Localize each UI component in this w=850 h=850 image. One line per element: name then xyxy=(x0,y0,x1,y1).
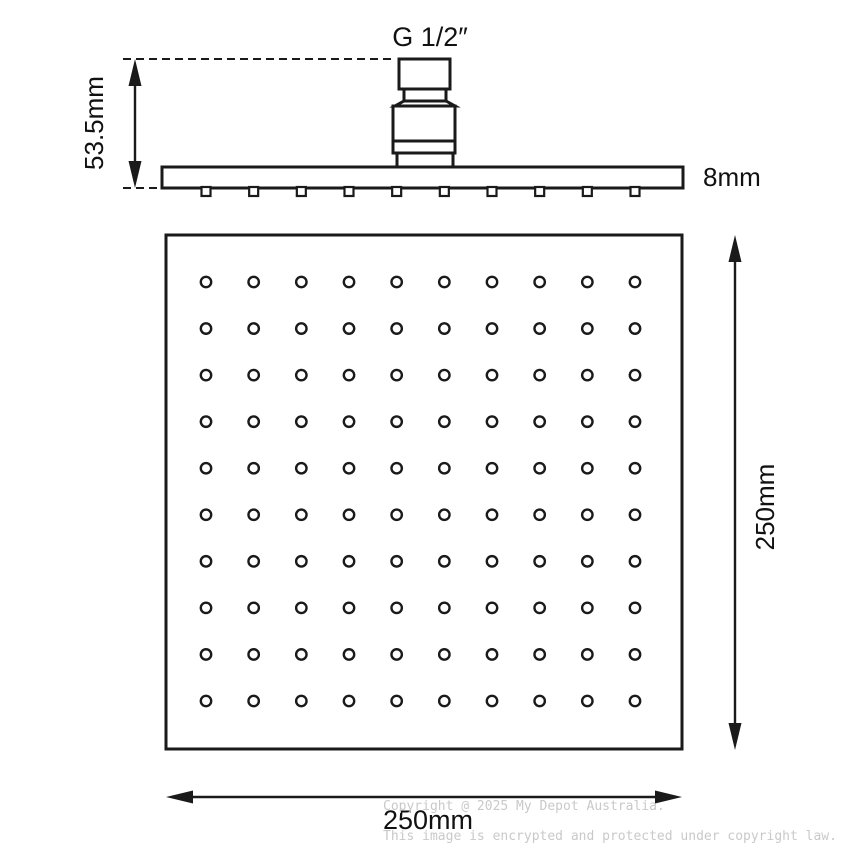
watermark-line-1: Copyright @ 2025 My Depot Australia. xyxy=(383,799,665,814)
nozzle xyxy=(345,187,354,196)
dimension-arrow-head-height xyxy=(129,59,142,188)
fitting-body xyxy=(393,106,455,141)
arrowhead-up-icon xyxy=(729,235,742,262)
plate-thickness-label: 8mm xyxy=(703,162,761,192)
nozzle xyxy=(583,187,592,196)
nozzle xyxy=(488,187,497,196)
nozzle xyxy=(631,187,640,196)
nozzle xyxy=(440,187,449,196)
collar-section xyxy=(404,89,446,101)
nozzle xyxy=(249,187,258,196)
thread-section xyxy=(399,59,450,89)
arrowhead-up-icon xyxy=(129,59,142,86)
side-view: 53.5mm G 1/2″ 8mm xyxy=(79,22,761,196)
arrowhead-down-icon xyxy=(729,723,742,750)
nozzle xyxy=(392,187,401,196)
head-height-label: 53.5mm xyxy=(79,76,109,170)
fitting-band xyxy=(393,141,455,153)
spray-plate-side xyxy=(162,167,683,188)
nozzle xyxy=(535,187,544,196)
thread-size-label: G 1/2″ xyxy=(392,22,468,52)
shower-head-diagram: 53.5mm G 1/2″ 8mm xyxy=(0,0,850,850)
technical-drawing-canvas: 53.5mm G 1/2″ 8mm xyxy=(0,0,850,850)
thread-fitting xyxy=(393,59,455,168)
dimension-arrow-depth xyxy=(729,235,742,750)
spray-plate-face xyxy=(166,235,682,749)
plate-depth-label: 250mm xyxy=(750,464,780,551)
nozzle xyxy=(297,187,306,196)
bottom-view: 250mm 250mm xyxy=(166,235,780,835)
arrowhead-down-icon xyxy=(129,161,142,188)
watermark-line-2: This image is encrypted and protected un… xyxy=(383,829,837,844)
nozzle xyxy=(202,187,211,196)
arrowhead-left-icon xyxy=(166,791,193,804)
